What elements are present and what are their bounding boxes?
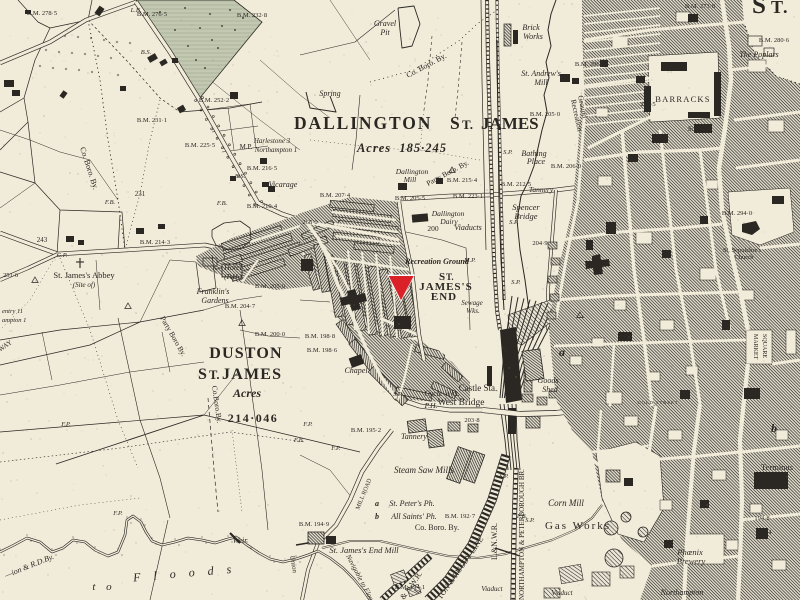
svg-text:B.M. 198·8: B.M. 198·8 bbox=[305, 333, 335, 340]
svg-text:S: S bbox=[198, 366, 207, 383]
svg-text:B.S.: B.S. bbox=[141, 49, 152, 56]
svg-text:B.M. 192·7: B.M. 192·7 bbox=[445, 513, 476, 520]
svg-text:S.P.: S.P. bbox=[503, 149, 513, 156]
svg-text:Place: Place bbox=[526, 157, 546, 166]
svg-text:B.M. 232·8: B.M. 232·8 bbox=[237, 12, 267, 19]
svg-text:Vicarage: Vicarage bbox=[269, 180, 298, 189]
svg-text:Tannery: Tannery bbox=[401, 432, 427, 441]
svg-text:S.P.: S.P. bbox=[393, 391, 403, 398]
svg-text:BARRACKS: BARRACKS bbox=[655, 94, 710, 104]
svg-text:S.P.: S.P. bbox=[499, 473, 509, 480]
svg-text:T: T bbox=[771, 0, 783, 17]
svg-text:Acres 185·245: Acres 185·245 bbox=[356, 141, 447, 155]
svg-text:B.S.: B.S. bbox=[235, 173, 246, 180]
svg-text:Goods: Goods bbox=[538, 376, 559, 385]
svg-text:194·8: 194·8 bbox=[754, 515, 769, 522]
svg-text:Harlestone 3: Harlestone 3 bbox=[253, 137, 291, 145]
svg-text:B.M. 200·0: B.M. 200·0 bbox=[255, 331, 285, 338]
svg-text:Viaduct: Viaduct bbox=[481, 585, 503, 593]
svg-text:B.M. 204·7: B.M. 204·7 bbox=[225, 303, 256, 310]
svg-text:B.M. 215·4: B.M. 215·4 bbox=[447, 177, 478, 184]
svg-text:Chapel: Chapel bbox=[344, 366, 368, 375]
svg-text:F.P.: F.P. bbox=[330, 445, 341, 452]
svg-text:Hotel: Hotel bbox=[223, 263, 243, 272]
svg-text:NORTHAMPTON & PETERBOROUGH BR.: NORTHAMPTON & PETERBOROUGH BR. bbox=[518, 469, 526, 600]
svg-text:B.M. 194·1: B.M. 194·1 bbox=[395, 584, 425, 591]
svg-text:B.M. 210·4: B.M. 210·4 bbox=[247, 203, 278, 210]
svg-text:B.M. 198·6: B.M. 198·6 bbox=[307, 347, 338, 354]
svg-text:Pit: Pit bbox=[379, 28, 390, 37]
svg-text:.: . bbox=[783, 0, 788, 17]
svg-text:Northampton: Northampton bbox=[660, 588, 704, 597]
svg-text:S: S bbox=[450, 113, 460, 133]
svg-text:F.B.: F.B. bbox=[216, 200, 228, 207]
svg-text:Brick: Brick bbox=[522, 23, 540, 32]
svg-text:243: 243 bbox=[37, 236, 48, 244]
svg-text:St. James's End Mill: St. James's End Mill bbox=[329, 545, 399, 555]
svg-text:a: a bbox=[559, 345, 565, 359]
svg-text:Weir: Weir bbox=[233, 536, 249, 545]
svg-text:F.B.: F.B. bbox=[293, 437, 305, 444]
svg-text:ampton 1: ampton 1 bbox=[2, 317, 26, 324]
svg-text:St. James's Abbey: St. James's Abbey bbox=[53, 270, 115, 280]
svg-text:St. Peter's Ph.: St. Peter's Ph. bbox=[389, 499, 434, 508]
svg-text:a: a bbox=[375, 499, 379, 508]
svg-text:Gravel: Gravel bbox=[374, 19, 397, 28]
svg-text:West Bridge: West Bridge bbox=[438, 398, 485, 408]
svg-text:B.M. 296·0: B.M. 296·0 bbox=[575, 61, 605, 68]
svg-text:END: END bbox=[431, 291, 457, 303]
svg-text:Viaducts: Viaducts bbox=[454, 223, 481, 232]
svg-text:214·046: 214·046 bbox=[228, 411, 279, 425]
svg-text:Works: Works bbox=[523, 32, 543, 41]
svg-text:L.&N.W.R.: L.&N.W.R. bbox=[490, 523, 499, 560]
svg-text:(Site of): (Site of) bbox=[73, 281, 96, 289]
svg-text:B.M. 205·5: B.M. 205·5 bbox=[395, 195, 425, 202]
svg-text:F.P.: F.P. bbox=[60, 421, 71, 428]
svg-text:b: b bbox=[771, 421, 777, 435]
svg-text:B.M. 216·5: B.M. 216·5 bbox=[247, 165, 277, 172]
svg-text:Viaduct: Viaduct bbox=[551, 589, 573, 597]
svg-text:GOLD STREET: GOLD STREET bbox=[637, 400, 678, 405]
svg-text:Shed: Shed bbox=[542, 385, 559, 394]
svg-text:203·8: 203·8 bbox=[464, 417, 479, 424]
svg-text:Co. Boro. By.: Co. Boro. By. bbox=[415, 523, 459, 532]
svg-text:B.M. 205·0: B.M. 205·0 bbox=[255, 283, 285, 290]
svg-text:DALLINGTON: DALLINGTON bbox=[294, 113, 432, 133]
svg-text:(P.H.): (P.H.) bbox=[224, 272, 242, 281]
svg-text:Gas Works: Gas Works bbox=[545, 520, 611, 532]
svg-text:Cycle Wks.: Cycle Wks. bbox=[424, 389, 460, 398]
svg-text:Sewage: Sewage bbox=[461, 299, 482, 307]
svg-text:B.M. 214·3: B.M. 214·3 bbox=[140, 239, 170, 246]
svg-text:B.M. 294·0: B.M. 294·0 bbox=[722, 210, 752, 217]
svg-text:Church: Church bbox=[734, 254, 754, 261]
svg-text:F.P.: F.P. bbox=[112, 510, 123, 517]
svg-text:Tannery: Tannery bbox=[529, 185, 554, 194]
svg-text:B.M. 194·9: B.M. 194·9 bbox=[299, 521, 329, 528]
svg-text:Spring: Spring bbox=[319, 89, 340, 98]
svg-text:F.B.: F.B. bbox=[104, 199, 116, 206]
svg-text:268·0: 268·0 bbox=[302, 219, 317, 226]
svg-text:S.P.: S.P. bbox=[511, 279, 521, 286]
svg-text:B.M. 223·1: B.M. 223·1 bbox=[453, 193, 483, 200]
svg-text:Franklin's: Franklin's bbox=[196, 287, 230, 296]
svg-text:Mill: Mill bbox=[403, 175, 417, 184]
svg-text:204·9: 204·9 bbox=[532, 240, 547, 247]
svg-text:t o: t o bbox=[92, 581, 115, 593]
svg-text:P.H.: P.H. bbox=[424, 401, 438, 410]
svg-text:193·4: 193·4 bbox=[756, 529, 772, 536]
svg-text:B.M. 225·5: B.M. 225·5 bbox=[185, 142, 215, 149]
svg-text:S.P.: S.P. bbox=[525, 517, 535, 524]
svg-text:Recreation Ground: Recreation Ground bbox=[404, 257, 470, 266]
svg-text:M.P.: M.P. bbox=[463, 257, 476, 264]
svg-text:entry 11: entry 11 bbox=[2, 308, 23, 315]
svg-text:St. Andrew's: St. Andrew's bbox=[521, 69, 561, 78]
svg-text:M.P.: M.P. bbox=[240, 143, 253, 151]
svg-text:275·5: 275·5 bbox=[640, 101, 655, 108]
svg-text:B.M. 278·5: B.M. 278·5 bbox=[27, 10, 57, 17]
svg-text:DUSTON: DUSTON bbox=[209, 345, 283, 362]
svg-text:Steam Saw Mills: Steam Saw Mills bbox=[394, 465, 454, 475]
svg-text:B.M. 207·4: B.M. 207·4 bbox=[320, 192, 351, 199]
svg-text:T.: T. bbox=[462, 117, 473, 132]
svg-text:The Poplars: The Poplars bbox=[739, 50, 778, 59]
svg-text:B.M. 205·0: B.M. 205·0 bbox=[530, 111, 560, 118]
svg-text:200: 200 bbox=[427, 224, 439, 233]
svg-text:S: S bbox=[752, 0, 768, 19]
svg-text:B.M. 206·0: B.M. 206·0 bbox=[551, 163, 581, 170]
svg-text:S.P.: S.P. bbox=[509, 219, 519, 226]
svg-text:SQUARE: SQUARE bbox=[761, 334, 767, 358]
svg-text:Mill: Mill bbox=[533, 78, 548, 87]
svg-text:L.B.: L.B. bbox=[130, 7, 142, 14]
svg-text:b: b bbox=[375, 512, 379, 521]
svg-text:Terminus: Terminus bbox=[761, 462, 793, 472]
svg-text:All Saints' Ph.: All Saints' Ph. bbox=[390, 512, 437, 521]
svg-text:B.M. 212·5: B.M. 212·5 bbox=[501, 181, 531, 188]
svg-text:St. Sepulchre's: St. Sepulchre's bbox=[723, 247, 762, 254]
svg-text:Corn Mill: Corn Mill bbox=[548, 498, 584, 508]
svg-text:251·6: 251·6 bbox=[3, 272, 19, 279]
svg-text:F.P.: F.P. bbox=[302, 421, 313, 428]
svg-text:Northampton 1: Northampton 1 bbox=[254, 146, 298, 154]
svg-text:Brewery: Brewery bbox=[677, 556, 706, 566]
svg-text:Castle Sta.: Castle Sta. bbox=[459, 383, 498, 393]
svg-text:Wks.: Wks. bbox=[466, 307, 480, 315]
svg-text:B.M. 280·6: B.M. 280·6 bbox=[759, 37, 790, 44]
svg-text:B.M. 231·1: B.M. 231·1 bbox=[137, 117, 167, 124]
svg-text:MARKET: MARKET bbox=[752, 334, 758, 360]
svg-text:B.M. 273·8: B.M. 273·8 bbox=[685, 3, 715, 10]
svg-text:JAMES: JAMES bbox=[222, 366, 282, 383]
svg-text:G.P.: G.P. bbox=[56, 252, 67, 259]
svg-text:B.M. 195·2: B.M. 195·2 bbox=[351, 427, 381, 434]
svg-text:School: School bbox=[688, 124, 708, 133]
svg-text:B.M. 252·2: B.M. 252·2 bbox=[199, 97, 229, 104]
svg-text:B.M. 276·5: B.M. 276·5 bbox=[137, 11, 167, 18]
svg-text:T.: T. bbox=[209, 368, 220, 382]
